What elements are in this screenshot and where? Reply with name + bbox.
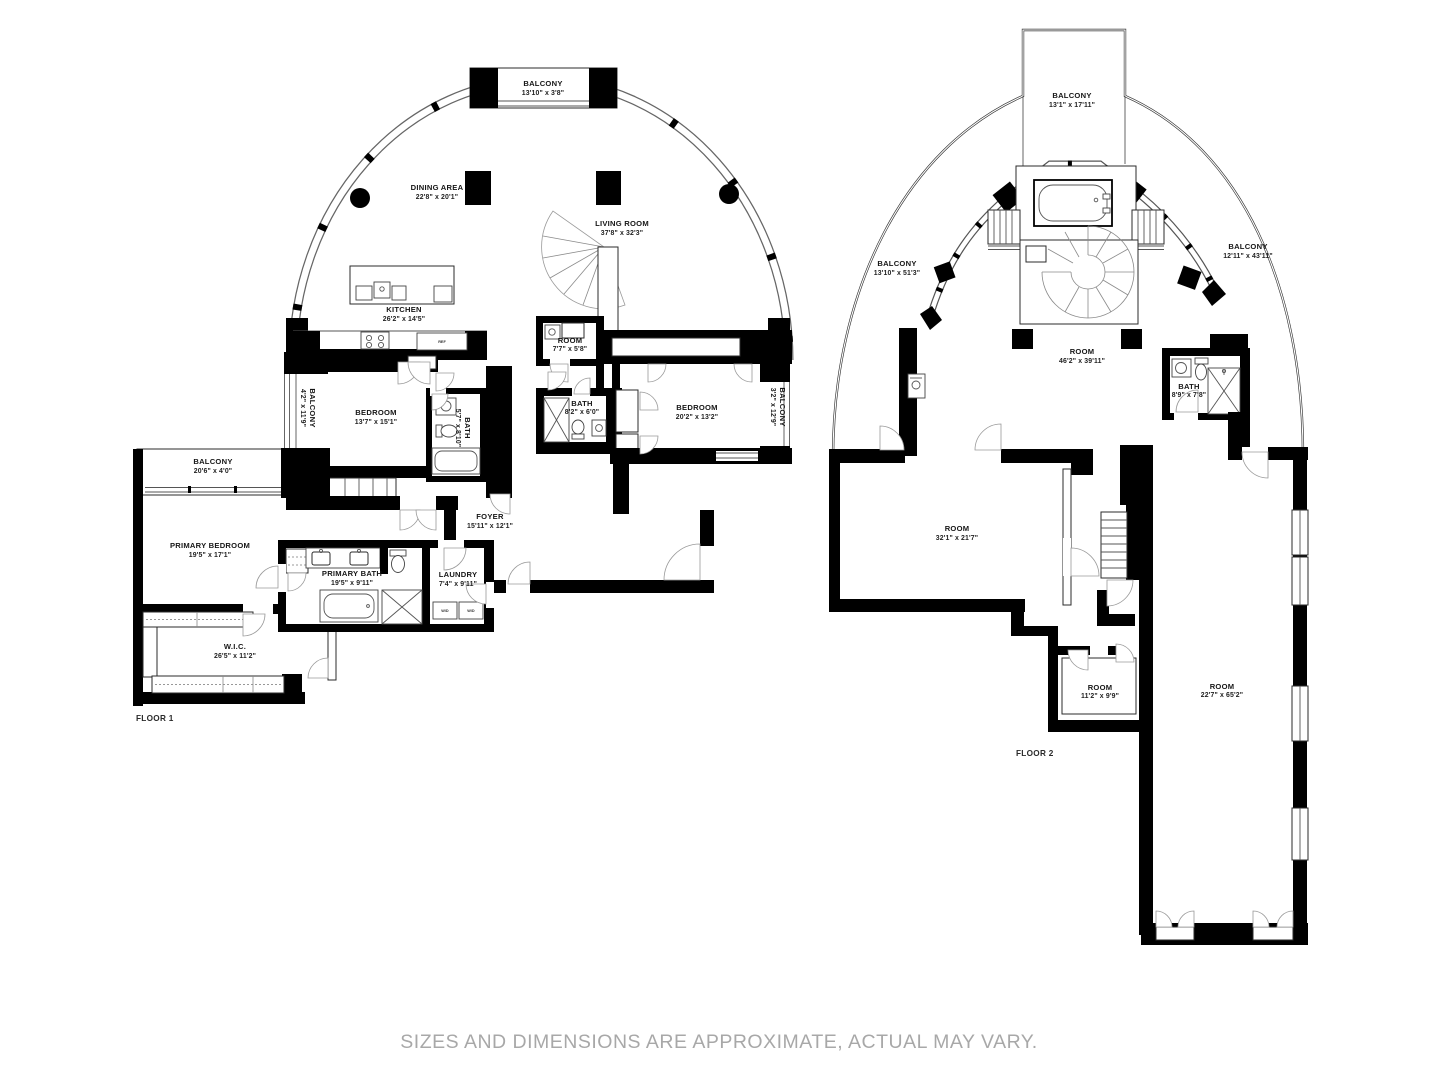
room-label: FOYER	[476, 512, 504, 521]
floor1-top-balcony	[470, 68, 617, 108]
room-label: BATH	[571, 399, 593, 408]
room-dims: 13'1" x 17'11"	[1049, 102, 1095, 109]
sink-icon	[1172, 359, 1191, 377]
floor1-bedroom2	[610, 360, 792, 464]
sink-icon	[592, 420, 606, 436]
sink-icon	[312, 552, 330, 565]
room-dims: 20'2" x 13'2"	[676, 414, 718, 421]
room-label: LIVING ROOM	[595, 219, 649, 228]
floor2-tub-room	[1016, 166, 1136, 244]
room-dims: 7'4" x 9'11"	[439, 581, 477, 588]
room-dims: 26'2" x 14'5"	[383, 316, 425, 323]
room-label: BALCONY	[523, 79, 562, 88]
room-dims: 19'5" x 9'11"	[331, 580, 373, 587]
toilet-icon	[1196, 364, 1207, 380]
disclaimer-text: SIZES AND DIMENSIONS ARE APPROXIMATE, AC…	[400, 1031, 1037, 1053]
floor1-living-south-wall	[598, 330, 792, 364]
room-dims: 11'2" x 9'9"	[1081, 693, 1119, 700]
floor2-title: FLOOR 2	[1016, 749, 1054, 758]
toilet-icon	[392, 556, 405, 573]
room-label: DINING AREA	[411, 183, 464, 192]
room-label: BALCONY	[1052, 91, 1091, 100]
column-diamond	[1177, 265, 1201, 289]
washer-label: W/D	[441, 609, 449, 613]
floorplan-canvas: REF	[0, 0, 1440, 1080]
room-label: BEDROOM	[355, 408, 396, 417]
room-label: ROOM	[1210, 682, 1235, 691]
stove-icon	[361, 332, 389, 349]
floor2-main-room-walls	[899, 328, 1142, 456]
room-label: KITCHEN	[386, 305, 422, 314]
room-label: PRIMARY BEDROOM	[170, 541, 250, 550]
room-label: BEDROOM	[676, 403, 717, 412]
room-dims: 22'7" x 65'2"	[1201, 692, 1243, 699]
room-dims: 12'11" x 43'11"	[1223, 253, 1273, 260]
room-label: BALCONY	[877, 259, 916, 268]
stairs-icon	[1132, 210, 1164, 244]
room-label: ROOM	[1088, 683, 1113, 692]
room-dims: 15'11" x 12'1"	[467, 523, 513, 530]
room-label: W.I.C.	[224, 642, 246, 651]
sink-icon	[350, 552, 368, 565]
room-dims: 13'10" x 3'8"	[522, 90, 564, 97]
floor1-title: FLOOR 1	[136, 714, 174, 723]
refrigerator-label: REF	[438, 340, 446, 344]
floor1-plan: REF	[133, 68, 792, 723]
room-dims: 26'5" x 11'2"	[214, 653, 256, 660]
floor2-spiral-stair	[1020, 226, 1138, 324]
room-label: BALCONY	[308, 388, 317, 427]
room-dims: 32'1" x 21'7"	[936, 535, 978, 542]
room-dims: 8'9" x 7'8"	[1172, 392, 1206, 399]
room-dims: 4'2" x 11'9"	[299, 389, 306, 427]
floor1-small-room	[536, 316, 604, 400]
floor1-kitchen-island	[350, 266, 454, 304]
room-label: BALCONY	[778, 387, 787, 426]
room-label: ROOM	[945, 524, 970, 533]
room-label: BATH	[463, 417, 472, 439]
room-dims: 7'7" x 5'8"	[553, 346, 587, 353]
toilet-icon	[572, 420, 584, 434]
dryer-label: W/D	[467, 609, 475, 613]
room-dims: 46'2" x 39'11"	[1059, 358, 1105, 365]
room-dims: 13'7" x 15'1"	[355, 419, 397, 426]
room-dims: 13'10" x 51'3"	[874, 270, 920, 277]
floor1-bath2	[536, 388, 622, 454]
room-dims: 3'2" x 12'9"	[769, 388, 776, 426]
floor2-plan: BALCONY 13'1" x 17'11" BALCONY 13'10" x …	[829, 30, 1308, 945]
room-label: BATH	[1178, 382, 1200, 391]
room-label: BALCONY	[1228, 242, 1267, 251]
stairs-icon	[988, 210, 1020, 244]
room-dims: 20'6" x 4'0"	[194, 468, 232, 475]
room-label: LAUNDRY	[439, 570, 478, 579]
room-dims: 22'8" x 20'1"	[416, 194, 458, 201]
room-dims: 5'7" x 8'10"	[454, 409, 461, 447]
room-dims: 19'5" x 17'1"	[189, 552, 231, 559]
room-dims: 37'8" x 32'3"	[601, 230, 643, 237]
floor2-room-sw-walls	[829, 449, 1093, 648]
room-label: ROOM	[1070, 347, 1095, 356]
room-label: PRIMARY BATH	[322, 569, 382, 578]
room-label: BALCONY	[193, 457, 232, 466]
floor1-columns	[350, 171, 739, 208]
room-dims: 8'2" x 6'0"	[565, 409, 599, 416]
room-label: ROOM	[558, 336, 583, 345]
